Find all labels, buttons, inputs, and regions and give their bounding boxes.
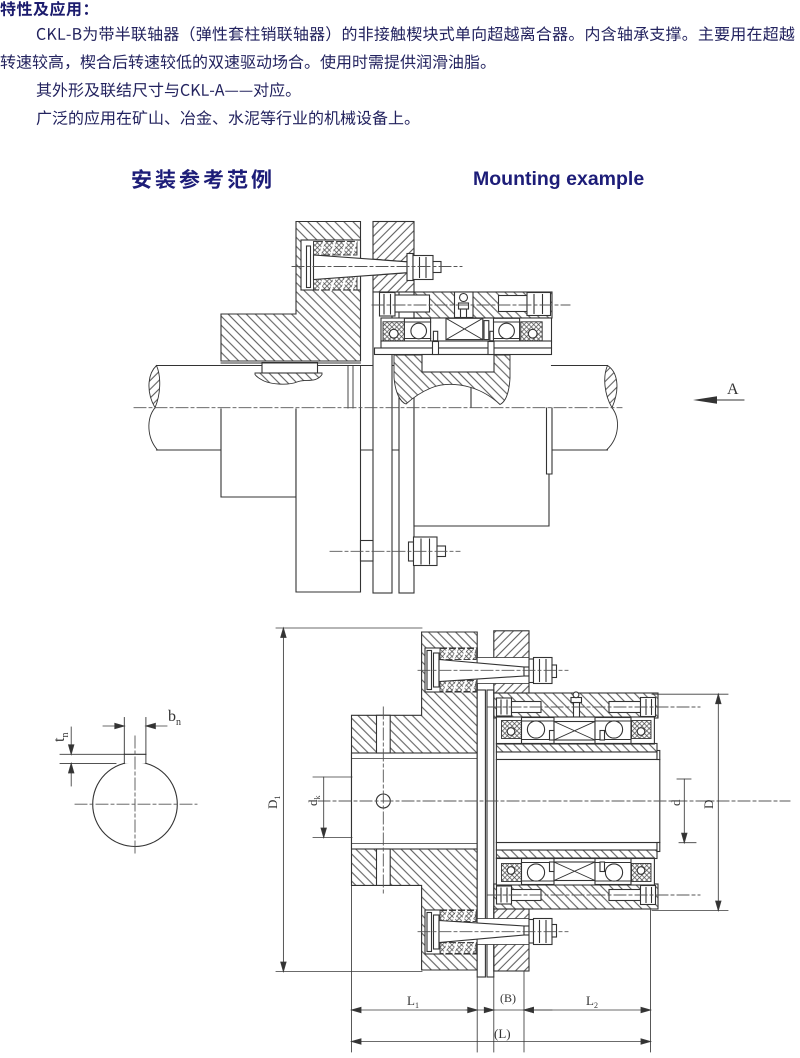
- svg-text:d: d: [668, 799, 683, 806]
- svg-text:tn: tn: [51, 733, 71, 742]
- svg-text:L1: L1: [407, 993, 419, 1010]
- svg-text:D1: D1: [265, 796, 282, 809]
- svg-text:bn: bn: [168, 708, 181, 728]
- svg-text:D: D: [701, 800, 716, 809]
- svg-text:dk: dk: [305, 796, 322, 807]
- svg-text:L2: L2: [586, 993, 598, 1010]
- svg-text:(B): (B): [500, 991, 516, 1005]
- svg-text:(L): (L): [494, 1026, 511, 1041]
- svg-text:A: A: [727, 381, 739, 398]
